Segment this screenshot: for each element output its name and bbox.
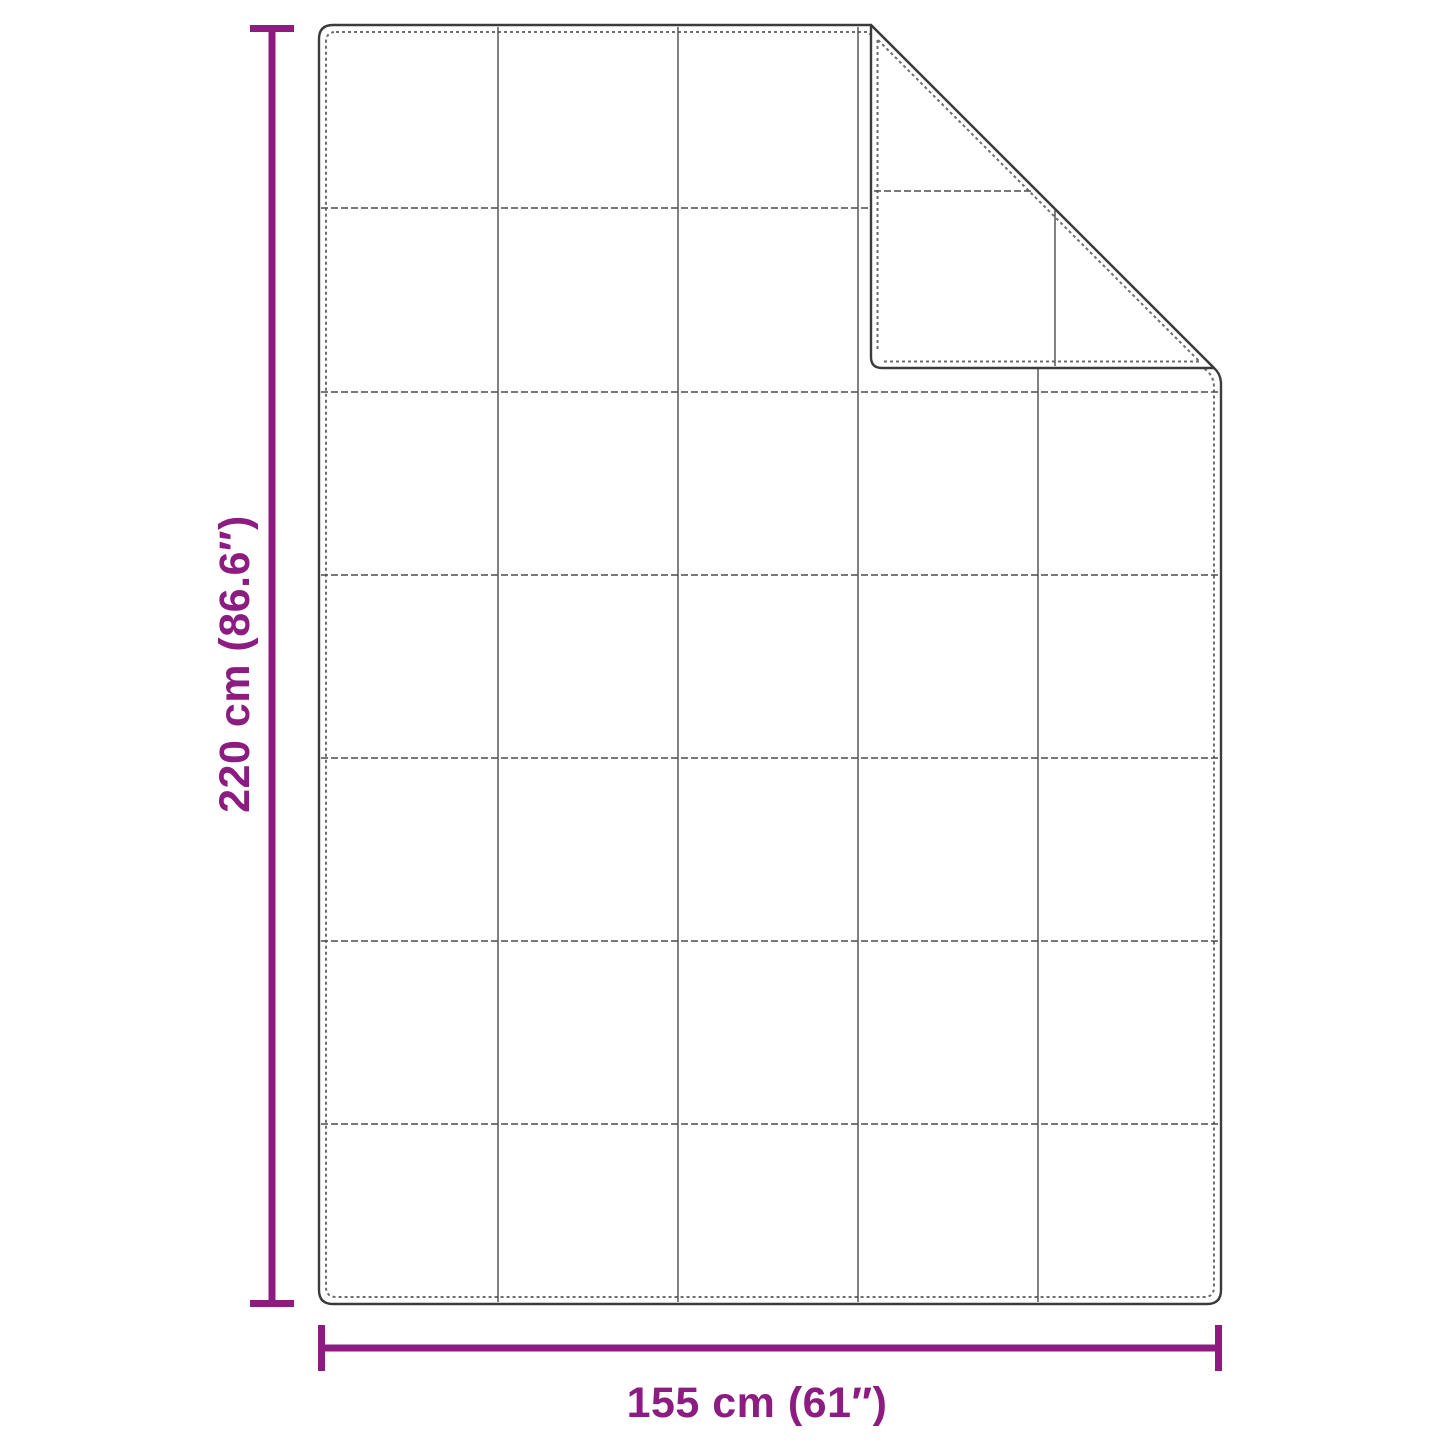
width-dimension (321, 1325, 1219, 1371)
blanket-diagram-svg: 220 cm (86.6″) 155 cm (61″) (0, 0, 1445, 1445)
height-dimension-label: 220 cm (86.6″) (211, 515, 259, 813)
blanket-outline (319, 25, 1221, 1304)
flap-outline (871, 25, 1214, 368)
width-dimension-label: 155 cm (61″) (627, 1379, 888, 1427)
product-dimension-diagram: 220 cm (86.6″) 155 cm (61″) (0, 0, 1445, 1445)
folded-corner-flap (871, 25, 1214, 368)
blanket-body (319, 25, 1221, 1304)
